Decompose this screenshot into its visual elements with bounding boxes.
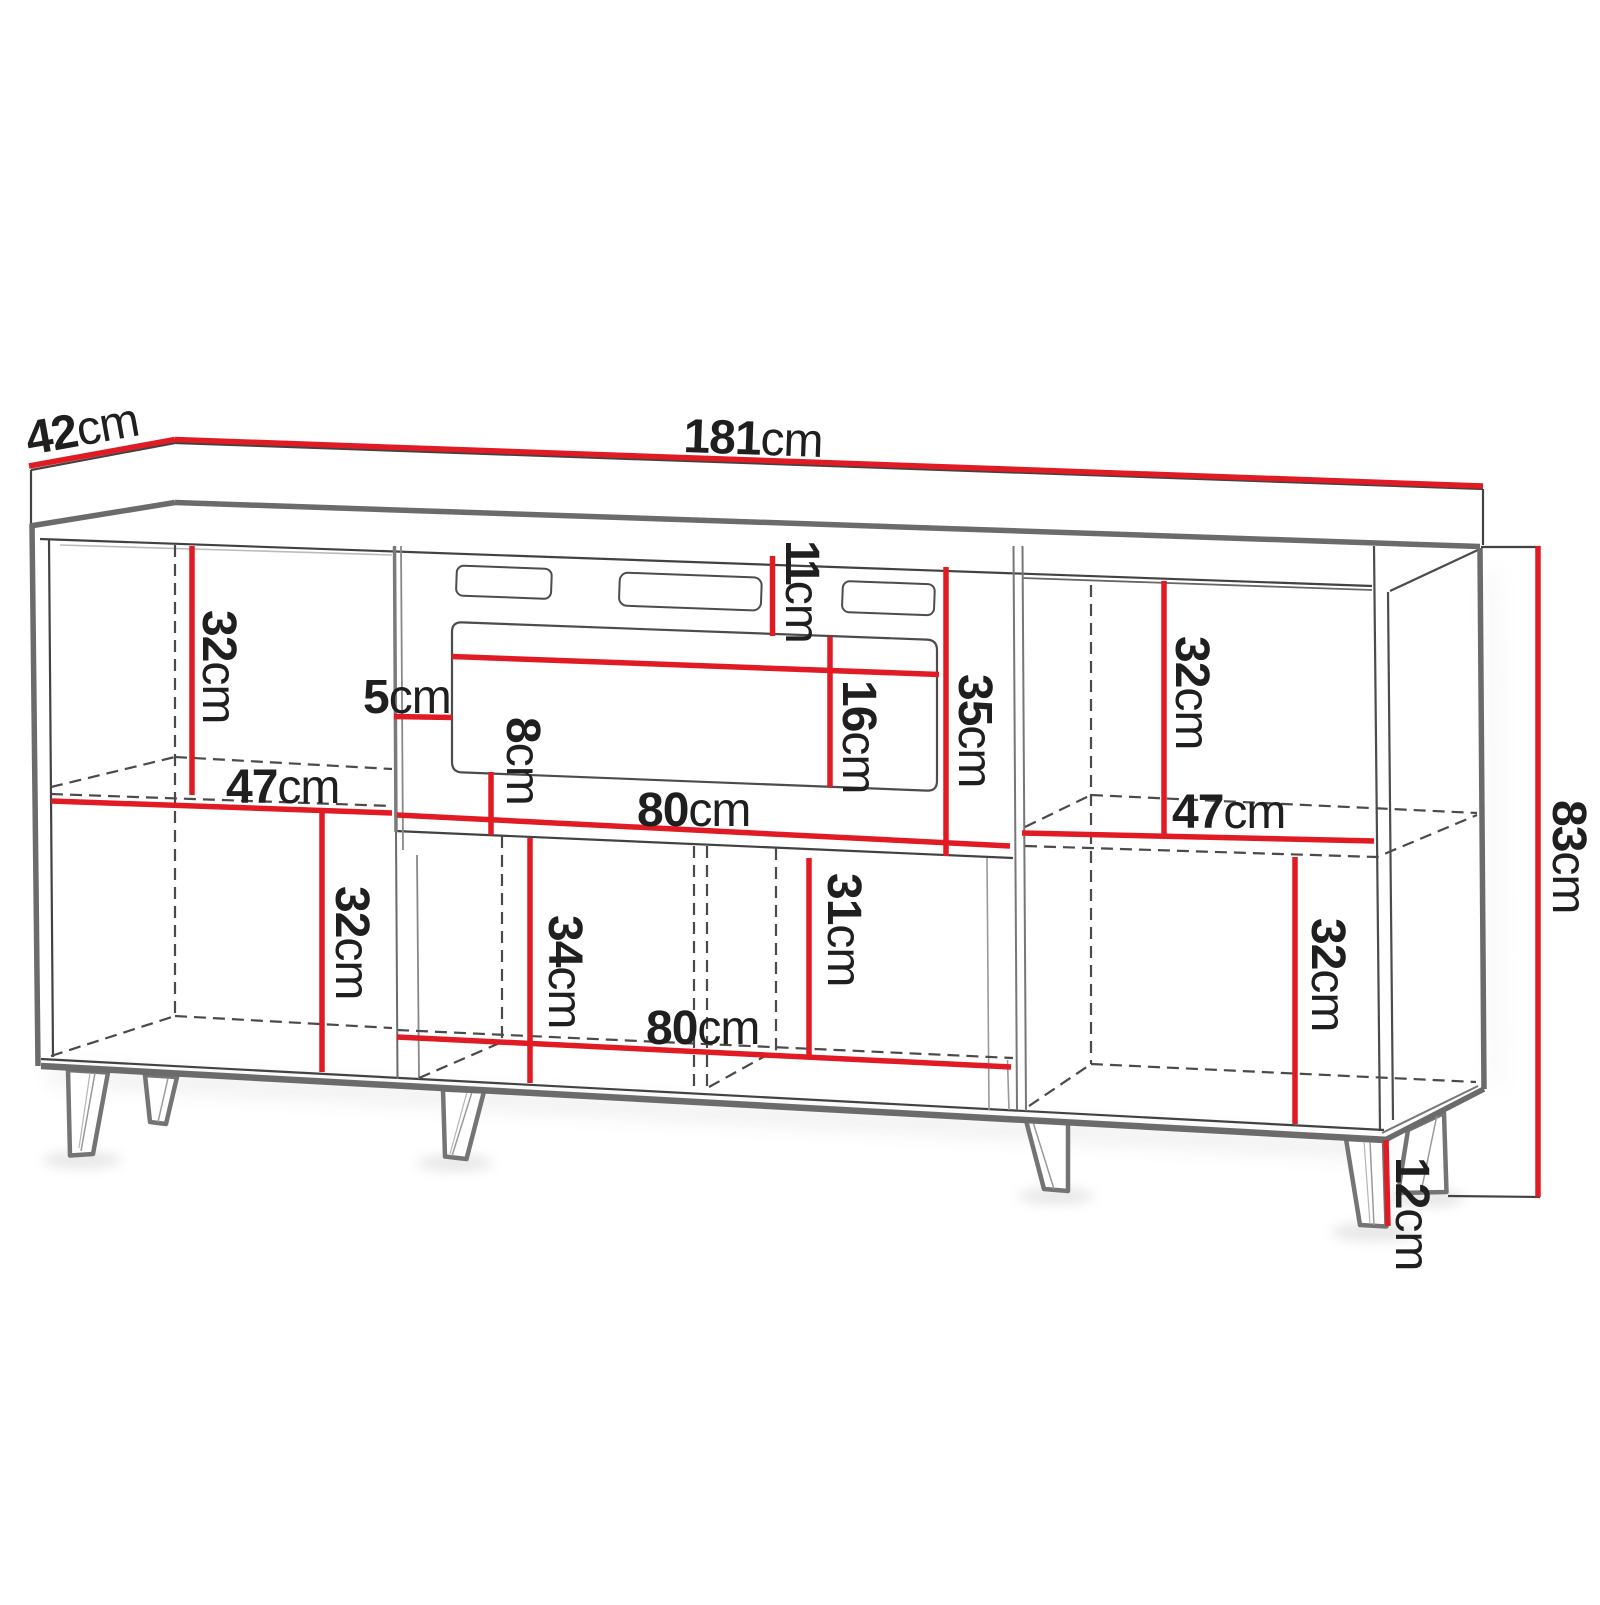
svg-text:32cm: 32cm: [192, 610, 245, 723]
svg-text:32cm: 32cm: [325, 886, 378, 999]
svg-text:47cm: 47cm: [226, 761, 339, 814]
svg-text:31cm: 31cm: [817, 873, 870, 986]
svg-text:12cm: 12cm: [1385, 1157, 1438, 1270]
svg-text:83cm: 83cm: [1542, 800, 1595, 913]
svg-text:5cm: 5cm: [363, 671, 451, 724]
svg-text:181cm: 181cm: [683, 410, 824, 468]
svg-text:8cm: 8cm: [496, 717, 549, 805]
svg-text:32cm: 32cm: [1301, 918, 1354, 1031]
svg-text:80cm: 80cm: [646, 1002, 759, 1055]
svg-text:32cm: 32cm: [1165, 636, 1218, 749]
svg-text:47cm: 47cm: [1172, 786, 1285, 839]
svg-text:80cm: 80cm: [637, 784, 750, 837]
svg-text:11cm: 11cm: [775, 540, 828, 643]
svg-text:35cm: 35cm: [948, 674, 1001, 787]
svg-text:34cm: 34cm: [538, 915, 591, 1028]
svg-text:16cm: 16cm: [832, 680, 885, 793]
